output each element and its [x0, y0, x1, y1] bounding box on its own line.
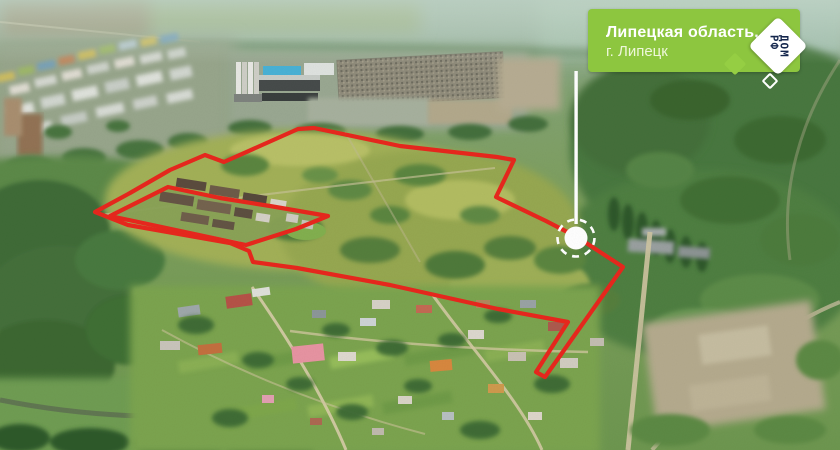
- banner-region-text: Липецкая область,: [606, 23, 759, 43]
- promo-screenshot: Липецкая область, г. Липецк ДОМ РФ: [0, 0, 840, 450]
- domrf-logo-text: ДОМ РФ: [768, 35, 788, 58]
